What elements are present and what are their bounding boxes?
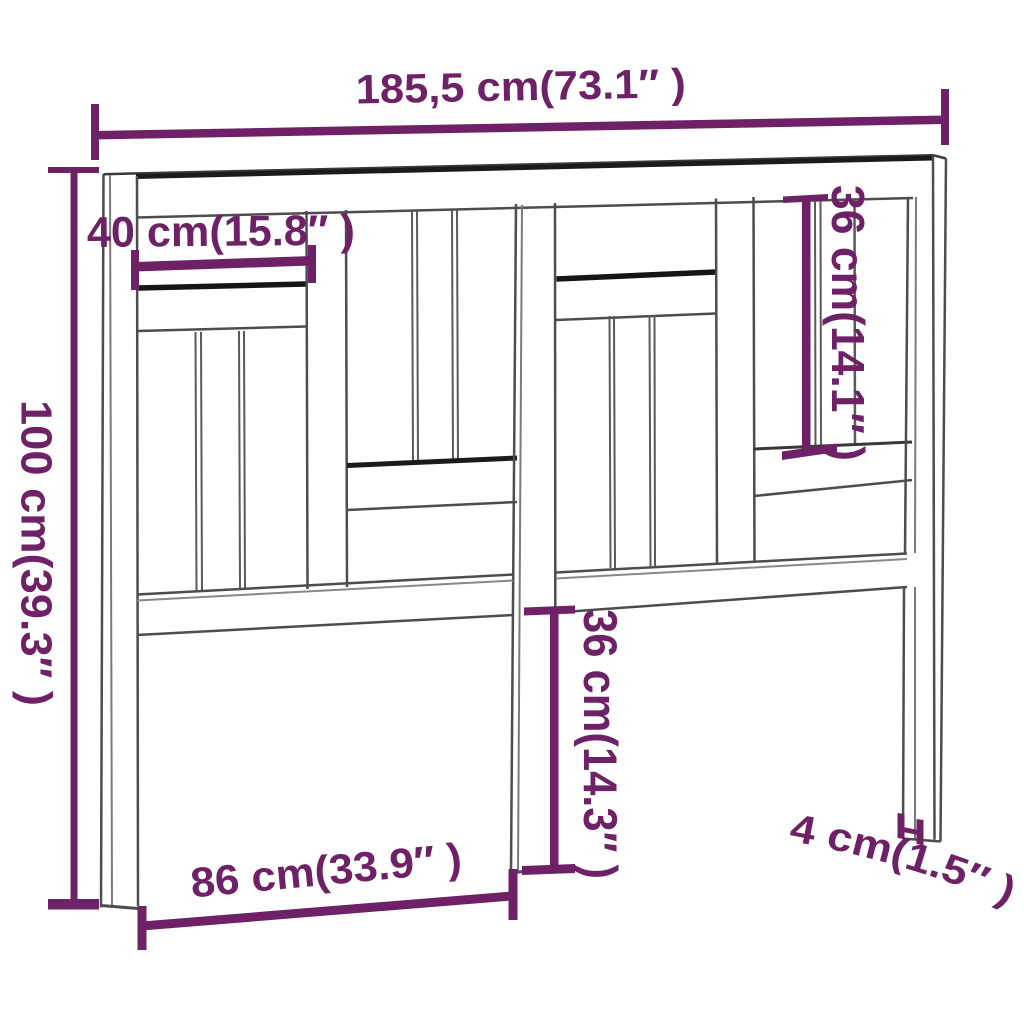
svg-text:185,5 cm(73.1″ ): 185,5 cm(73.1″ ) [355,60,686,112]
svg-text:36 cm(14.3″ ): 36 cm(14.3″ ) [574,609,627,879]
svg-text:100 cm(39.3″ ): 100 cm(39.3″ ) [12,400,61,706]
svg-text:36 cm(14.1″ ): 36 cm(14.1″ ) [822,185,874,461]
svg-text:40 cm(15.8″ ): 40 cm(15.8″ ) [87,207,355,257]
